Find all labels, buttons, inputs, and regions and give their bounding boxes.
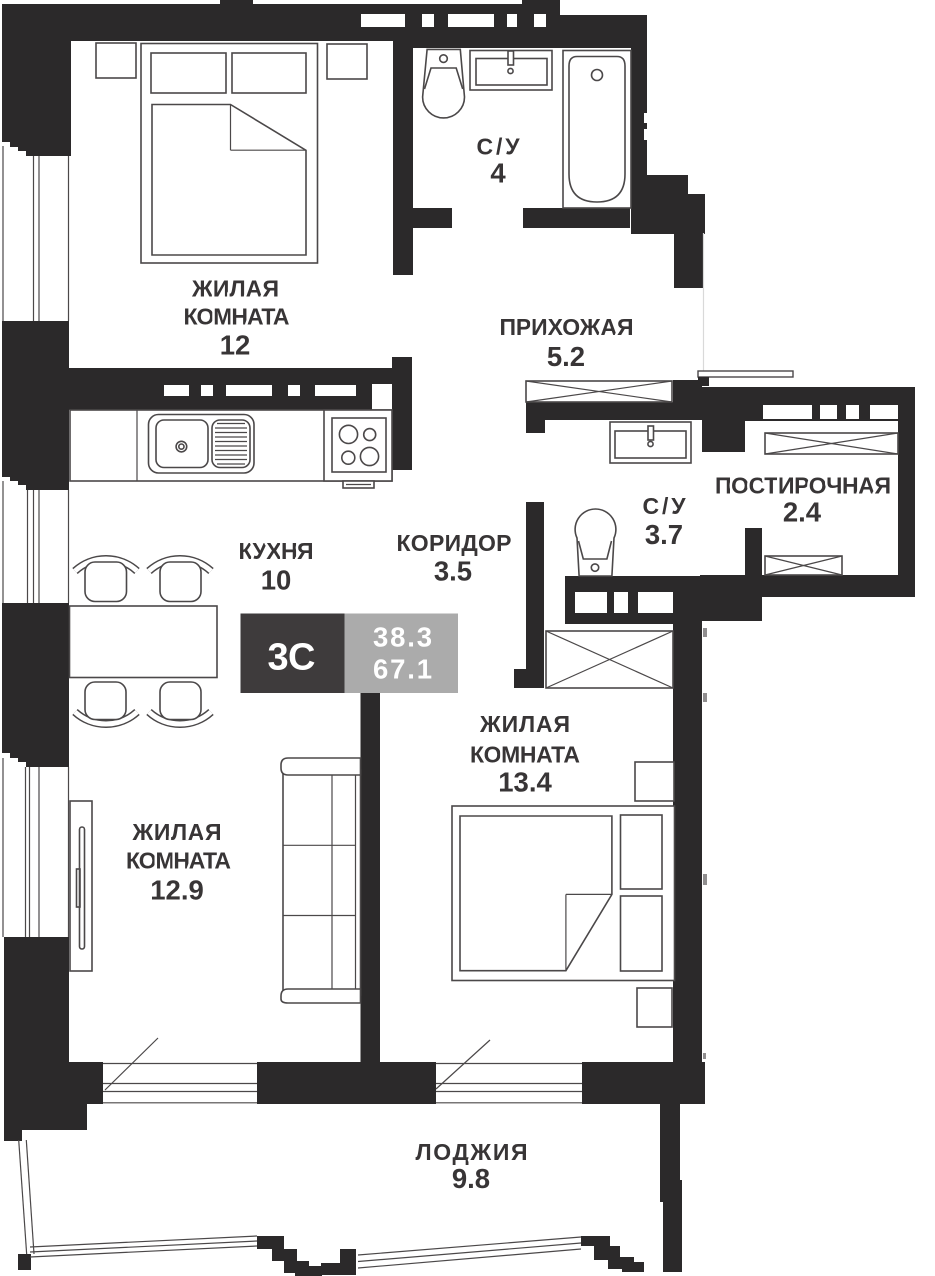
svg-text:ПРИХОЖАЯ: ПРИХОЖАЯ	[500, 314, 634, 340]
svg-text:ЖИЛАЯ: ЖИЛАЯ	[479, 711, 570, 737]
svg-text:КОРИДОР: КОРИДОР	[397, 530, 512, 556]
svg-text:9.8: 9.8	[452, 1163, 490, 1194]
svg-text:3.5: 3.5	[434, 556, 472, 587]
svg-text:ПОСТИРОЧНАЯ: ПОСТИРОЧНАЯ	[715, 473, 891, 499]
svg-text:КУХНЯ: КУХНЯ	[239, 538, 314, 564]
svg-text:ЖИЛАЯ: ЖИЛАЯ	[191, 276, 279, 302]
svg-text:КОМНАТА: КОМНАТА	[470, 742, 580, 768]
svg-text:3.7: 3.7	[645, 519, 683, 550]
svg-text:10: 10	[261, 565, 292, 596]
svg-text:КОМНАТА: КОМНАТА	[126, 848, 231, 874]
svg-text:4: 4	[490, 158, 506, 189]
svg-text:3С: 3С	[268, 637, 316, 679]
svg-text:ЖИЛАЯ: ЖИЛАЯ	[132, 819, 222, 845]
svg-text:38.3: 38.3	[373, 622, 432, 653]
svg-text:5.2: 5.2	[547, 341, 585, 372]
svg-text:67.1: 67.1	[373, 654, 432, 685]
svg-text:С/У: С/У	[477, 134, 521, 160]
svg-text:С/У: С/У	[643, 493, 687, 519]
svg-text:12: 12	[220, 330, 251, 361]
svg-text:КОМНАТА: КОМНАТА	[184, 304, 290, 330]
svg-text:ЛОДЖИЯ: ЛОДЖИЯ	[416, 1139, 528, 1165]
svg-text:2.4: 2.4	[783, 497, 822, 528]
svg-text:12.9: 12.9	[150, 875, 204, 906]
svg-text:13.4: 13.4	[498, 767, 552, 798]
